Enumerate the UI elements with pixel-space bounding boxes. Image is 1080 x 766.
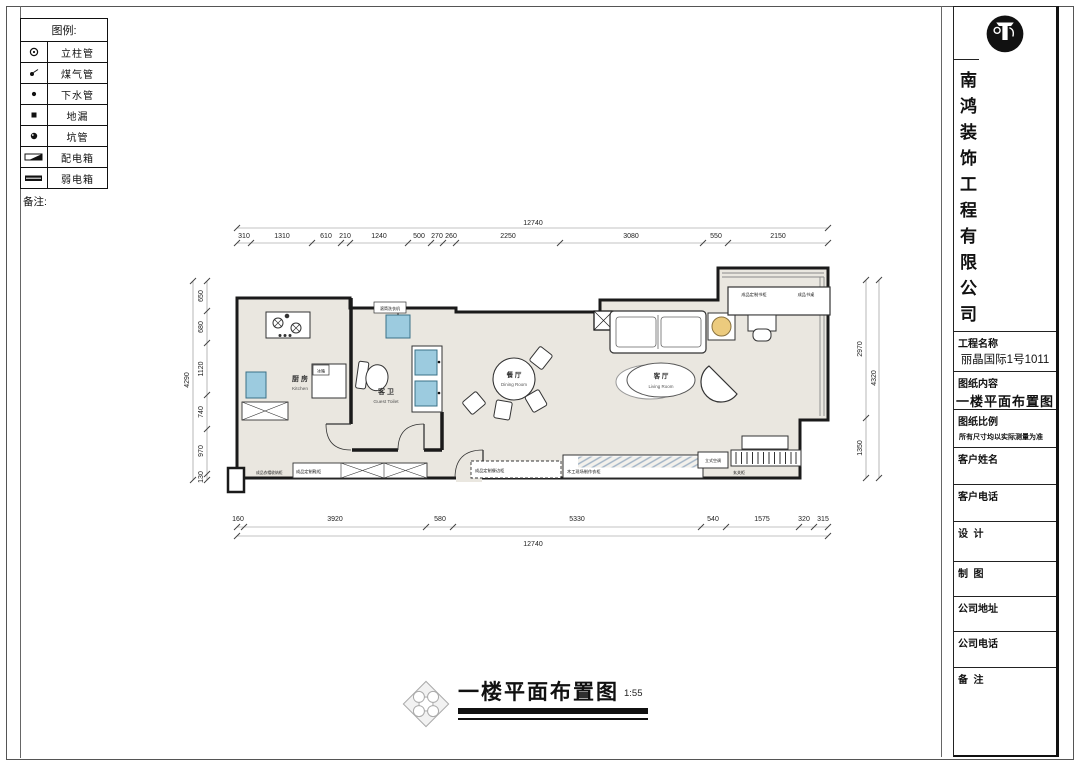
storage-label: 成品衣帽收纳柜: [256, 470, 283, 475]
legend-label: 坑管: [48, 126, 107, 146]
dimension-labels-left: 650 680 1120 740 970 130 4290: [184, 290, 205, 483]
living-label-cn: 客 厅: [653, 371, 669, 380]
svg-text:210: 210: [339, 233, 351, 240]
entry-step-wall: [228, 468, 244, 492]
field-label: 公司电话: [954, 632, 1056, 650]
tv-stand: [742, 436, 788, 449]
post-pipe-icon: [21, 42, 48, 62]
gas-pipe-icon: [21, 63, 48, 83]
dimension-labels-bottom: 160 3920 580 5330 540 1575 320 315 12740: [232, 516, 829, 548]
svg-text:1350: 1350: [857, 440, 864, 456]
kitchen-label-en: Kitchen: [292, 386, 308, 392]
field-drawing-content: 图纸内容 一楼平面布置图: [954, 371, 1056, 409]
legend-box: 图例: 立柱管 煤气管 下水管 地漏 坑管: [20, 18, 108, 189]
svg-text:550: 550: [710, 233, 722, 240]
drawing-scale: 1:55: [624, 688, 643, 699]
left-total-dimension: 4290: [184, 372, 191, 388]
bookcase-label: 成品定制书柜: [741, 291, 766, 298]
field-drawing-scale: 图纸比例 所有尺寸均以实际测量为准: [954, 409, 1056, 447]
toilet-label-cn: 客 卫: [377, 387, 394, 396]
desk-label: 成品书桌: [798, 291, 816, 298]
right-total-dimension: 4320: [871, 370, 878, 386]
floor-plan: 冰箱 厨 房 Kitchen 滚筒洗衣机 客 卫: [180, 200, 920, 560]
svg-text:1575: 1575: [754, 516, 770, 523]
lv-box-icon: [21, 168, 48, 188]
legend-label: 弱电箱: [48, 168, 107, 188]
svg-text:2970: 2970: [857, 341, 864, 357]
svg-text:2150: 2150: [770, 233, 786, 240]
field-company-address: 公司地址: [954, 596, 1056, 631]
field-value: 所有尺寸均以实际测量为准: [954, 432, 1056, 442]
title-underline-thick: [458, 708, 648, 714]
field-label: 图纸内容: [954, 372, 1056, 390]
svg-text:2250: 2250: [500, 233, 516, 240]
title-underline-thin: [458, 718, 648, 720]
entry-cabinet-label: 玄关柜: [733, 469, 745, 475]
svg-text:580: 580: [434, 516, 446, 523]
pit-pipe-icon: [21, 126, 48, 146]
field-client-phone: 客户电话: [954, 484, 1056, 521]
legend-row: 煤气管: [21, 62, 107, 83]
svg-text:270: 270: [431, 233, 443, 240]
company-logo-icon: [984, 12, 1026, 54]
dimension-labels-top: 310 1310 610 210 1240 500 270 260 2250 3…: [238, 220, 786, 240]
legend-row: 下水管: [21, 83, 107, 104]
dining-label-en: Dining Room: [501, 382, 527, 387]
living-label-en: Living Room: [648, 384, 673, 389]
svg-text:3080: 3080: [623, 233, 639, 240]
drawing-title: 一楼平面布置图: [458, 676, 619, 706]
legend-row: 弱电箱: [21, 167, 107, 188]
kitchen-label-cn: 厨 房: [292, 374, 308, 383]
field-remarks: 备 注: [954, 667, 1056, 753]
field-label: 公司地址: [954, 597, 1056, 615]
top-total-dimension: 12740: [523, 220, 543, 227]
kitchen-sink: [246, 372, 266, 398]
titleblock-separator-line: [941, 6, 942, 757]
svg-text:1120: 1120: [198, 361, 205, 376]
wardrobe: 木工现场制作衣柜: [563, 455, 703, 478]
legend-label: 下水管: [48, 84, 107, 104]
field-company-phone: 公司电话: [954, 631, 1056, 667]
washer-label: 滚筒洗衣机: [380, 305, 400, 311]
kitchen-cabinet: [242, 402, 288, 420]
dimension-labels-right: 2970 1350 4320: [857, 341, 878, 456]
wardrobe-label: 木工现场制作衣柜: [567, 468, 601, 475]
svg-text:320: 320: [798, 516, 810, 523]
svg-text:970: 970: [198, 445, 205, 457]
svg-text:5330: 5330: [569, 516, 585, 523]
legend-row: 地漏: [21, 104, 107, 125]
svg-text:315: 315: [817, 516, 829, 523]
title-block: 南鸿装饰工程有限公司 工程名称 丽晶国际1号1011 图纸内容 一楼平面布置图 …: [953, 6, 1059, 757]
dining-table: 餐 厅 Dining Room: [493, 358, 535, 400]
legend-label: 地漏: [48, 105, 107, 125]
field-label: 设 计: [954, 522, 1056, 540]
field-label: 客户电话: [954, 485, 1056, 503]
notes-label: 备注:: [23, 194, 47, 209]
svg-text:740: 740: [198, 406, 205, 418]
svg-text:3920: 3920: [327, 516, 343, 523]
shoe-cabinet-label: 成品定制鞋柜: [296, 468, 321, 475]
legend-label: 立柱管: [48, 42, 107, 62]
floor-ac: 立式空调: [698, 452, 728, 468]
field-label: 客户姓名: [954, 448, 1056, 466]
svg-text:260: 260: [445, 233, 457, 240]
sideboard: 成品定制餐边柜: [471, 461, 561, 478]
shoe-cabinet: 成品定制鞋柜: [293, 463, 427, 478]
field-label: 工程名称: [954, 332, 1056, 350]
svg-text:610: 610: [320, 233, 332, 240]
company-logo-row: [954, 7, 1056, 59]
field-designer: 设 计: [954, 521, 1056, 561]
field-project-name: 工程名称 丽晶国际1号1011: [954, 331, 1056, 371]
field-label: 制 图: [954, 562, 1056, 580]
drain-pipe-icon: [21, 84, 48, 104]
svg-text:1240: 1240: [371, 233, 387, 240]
toilet-label-en: Guest Toilet: [373, 399, 399, 405]
field-value: 一楼平面布置图: [954, 391, 1056, 410]
dining-label-cn: 餐 厅: [506, 370, 522, 379]
legend-label: 煤气管: [48, 63, 107, 83]
fridge: 冰箱: [312, 364, 346, 398]
svg-text:1310: 1310: [274, 233, 290, 240]
legend-row: 立柱管: [21, 41, 107, 62]
side-table: [708, 313, 735, 340]
toilet-sinks: [412, 346, 442, 412]
field-client-name: 客户姓名: [954, 447, 1056, 484]
kitchen-stove: [266, 312, 310, 338]
svg-text:130: 130: [198, 471, 205, 483]
drawing-sheet: 图例: 立柱管 煤气管 下水管 地漏 坑管: [0, 0, 1080, 766]
field-value: 丽晶国际1号1011: [954, 351, 1056, 367]
field-drafter: 制 图: [954, 561, 1056, 596]
field-label: 图纸比例: [954, 410, 1056, 428]
sideboard-label: 成品定制餐边柜: [475, 467, 504, 474]
field-label: 备 注: [954, 668, 1056, 686]
svg-text:650: 650: [198, 290, 205, 302]
legend-row: 坑管: [21, 125, 107, 146]
floor-drain-icon: [21, 105, 48, 125]
legend-label: 配电箱: [48, 147, 107, 167]
compass-logo-icon: [400, 678, 452, 730]
svg-text:540: 540: [707, 516, 719, 523]
legend-title: 图例:: [21, 19, 107, 41]
fridge-label: 冰箱: [317, 368, 325, 374]
bottom-total-dimension: 12740: [523, 541, 543, 548]
svg-text:310: 310: [238, 233, 250, 240]
legend-row: 配电箱: [21, 146, 107, 167]
svg-text:680: 680: [198, 321, 205, 333]
company-name: 南鸿装饰工程有限公司: [954, 59, 979, 331]
svg-text:500: 500: [413, 233, 425, 240]
svg-text:160: 160: [232, 516, 244, 523]
ac-label: 立式空调: [705, 457, 721, 463]
power-box-icon: [21, 147, 48, 167]
sofa: [610, 311, 706, 353]
